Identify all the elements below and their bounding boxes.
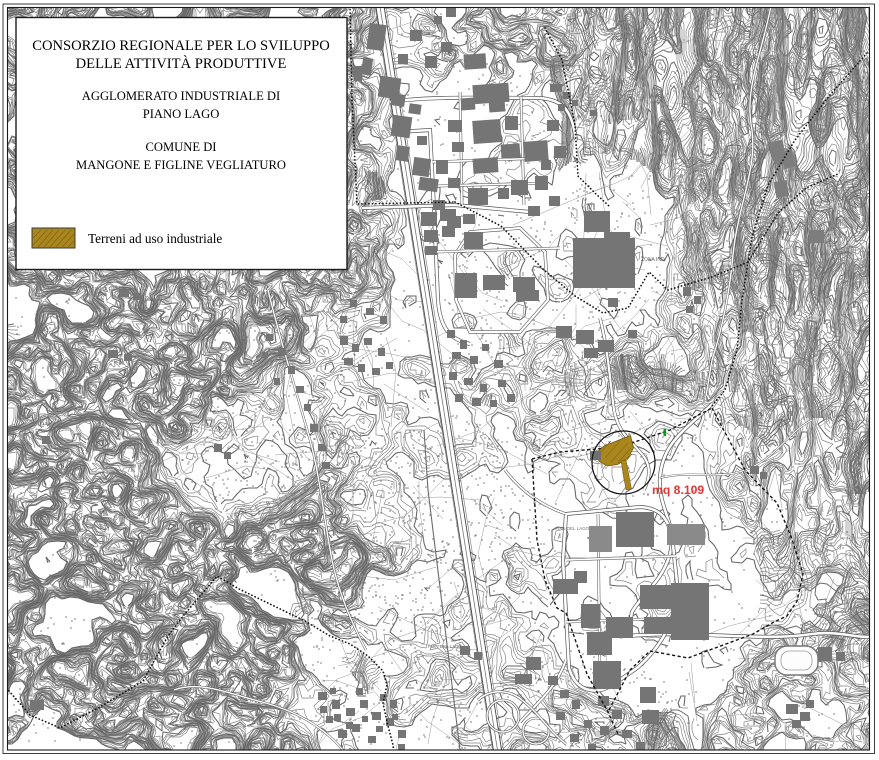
svg-text:PIAN: PIAN — [225, 520, 236, 525]
svg-text:PIAN DEL LAGO: PIAN DEL LAGO — [428, 644, 463, 649]
svg-text:MANGONE E FIGLINE VEGLIATURO: MANGONE E FIGLINE VEGLIATURO — [76, 158, 286, 172]
svg-text:PIAN DEL LAGO: PIAN DEL LAGO — [555, 526, 590, 531]
svg-text:DELLE ATTIVITÀ PRODUTTIVE: DELLE ATTIVITÀ PRODUTTIVE — [76, 55, 287, 72]
svg-text:PIANO LAGO: PIANO LAGO — [143, 107, 220, 121]
svg-text:CASINO LA PIERA: CASINO LA PIERA — [160, 428, 199, 433]
svg-text:COMUNE DI: COMUNE DI — [145, 140, 216, 154]
svg-text:mq 8.109: mq 8.109 — [652, 483, 704, 497]
svg-text:Terreni ad uso industriale: Terreni ad uso industriale — [88, 231, 222, 246]
svg-text:ZONA IND.: ZONA IND. — [641, 257, 666, 263]
svg-text:TORRE GRANDE: TORRE GRANDE — [92, 286, 128, 291]
svg-text:AGGLOMERATO INDUSTRIALE DI: AGGLOMERATO INDUSTRIALE DI — [82, 89, 280, 103]
svg-text:CONSORZIO REGIONALE PER LO SVI: CONSORZIO REGIONALE PER LO SVILUPPO — [32, 38, 330, 54]
